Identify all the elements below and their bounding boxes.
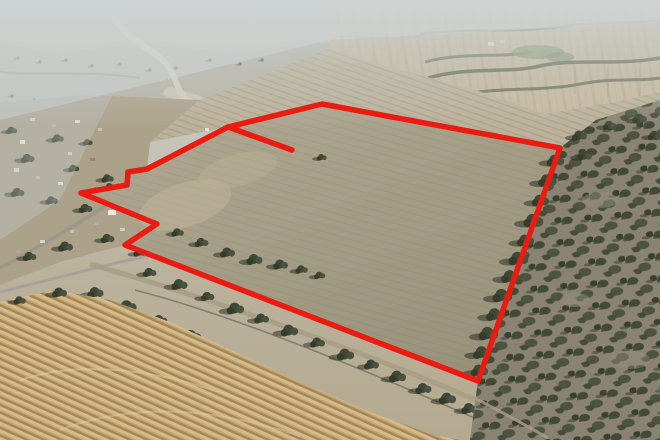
aerial-photo-canvas — [0, 0, 660, 440]
aerial-photo — [0, 0, 660, 440]
